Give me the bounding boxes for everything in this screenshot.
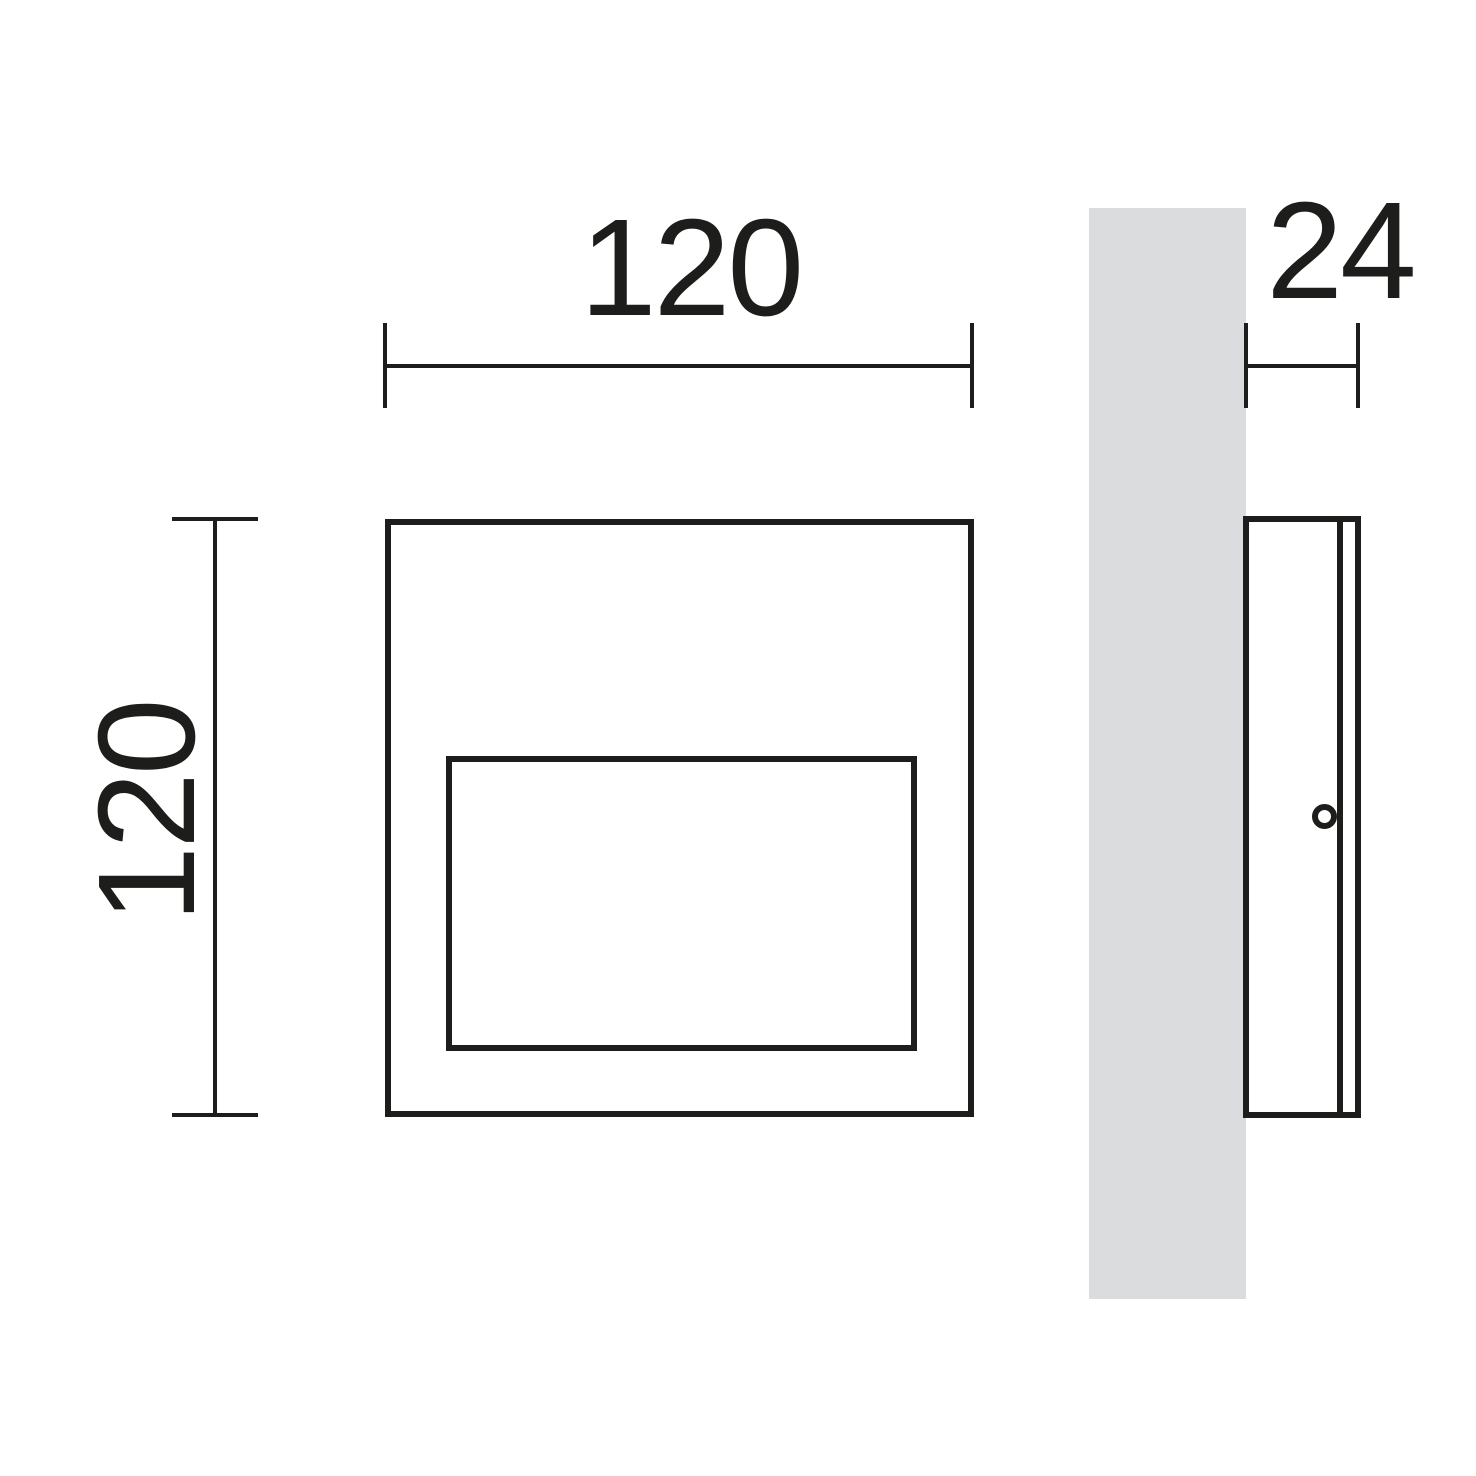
height-dimension-label: 120 xyxy=(78,512,216,1112)
side-view-faceplate-line xyxy=(1337,522,1343,1112)
depth-dimension-label: 24 xyxy=(1190,182,1476,320)
technical-drawing-canvas: 120 120 24 xyxy=(0,0,1476,1476)
mounting-hole-icon xyxy=(1312,804,1337,829)
width-dimension-line xyxy=(385,364,972,368)
side-view-outline xyxy=(1243,516,1361,1118)
depth-dimension-tick-right xyxy=(1356,323,1360,408)
width-dimension-label: 120 xyxy=(397,199,984,337)
height-dimension-tick-bottom xyxy=(172,1113,258,1117)
depth-dimension-tick-left xyxy=(1244,323,1248,408)
wall-section-fill xyxy=(1089,208,1246,1299)
width-dimension-tick-left xyxy=(383,323,387,408)
front-view-led-window xyxy=(446,756,917,1051)
depth-dimension-line xyxy=(1246,364,1358,368)
